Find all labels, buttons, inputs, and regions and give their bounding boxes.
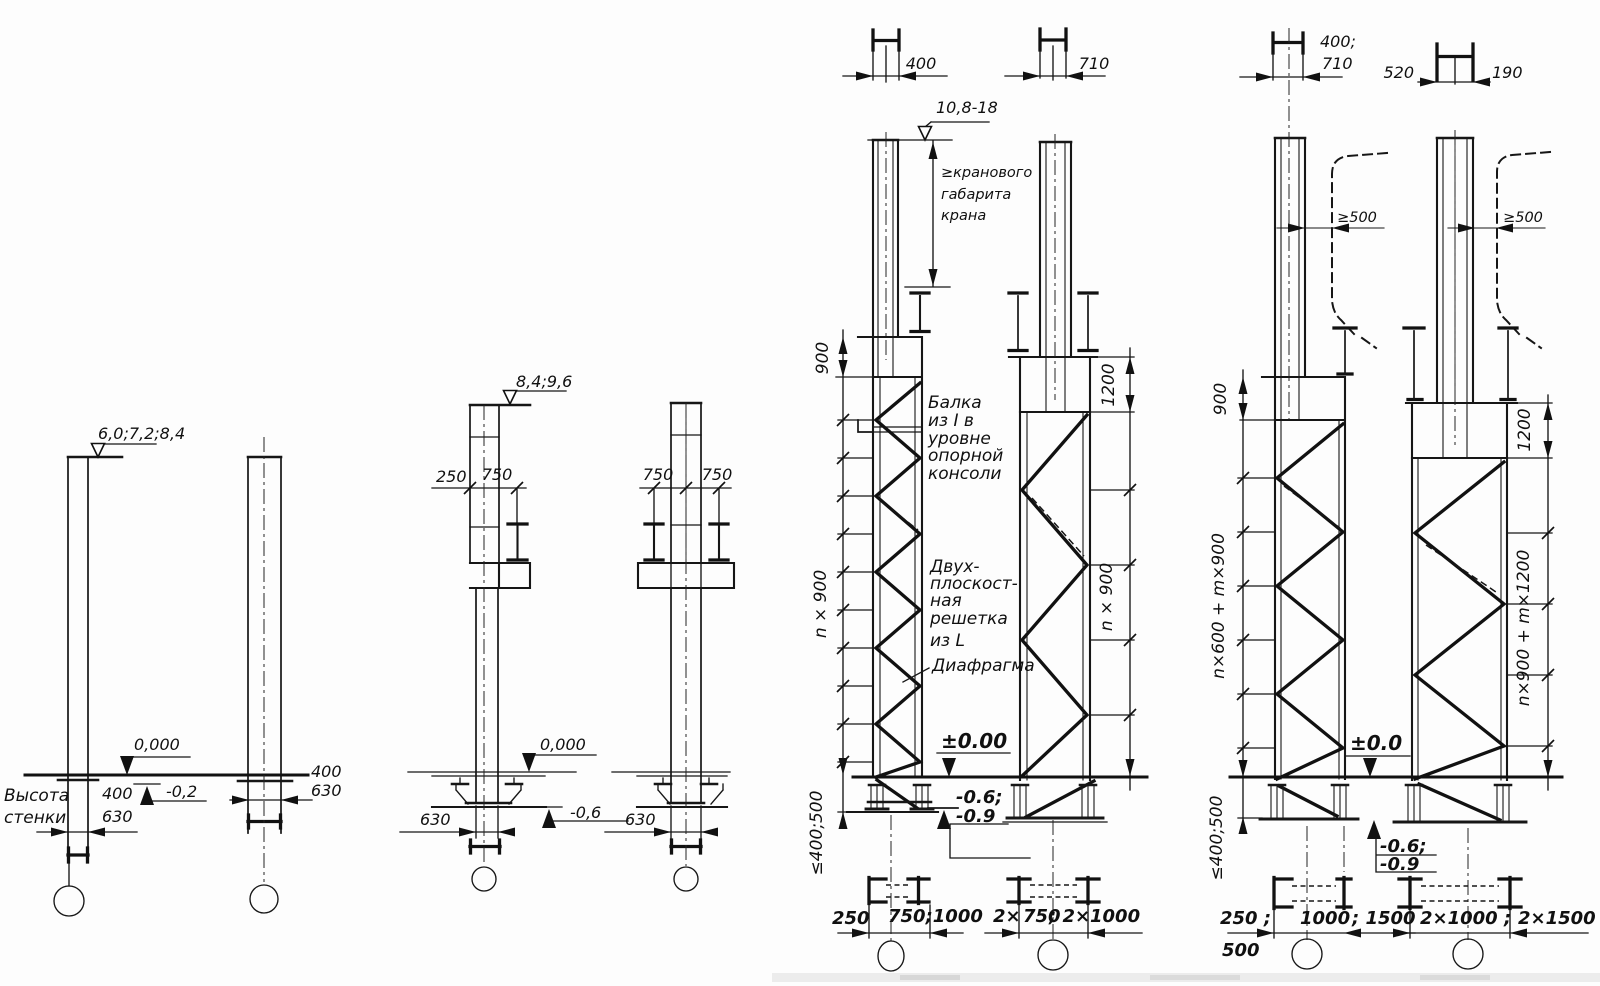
g3a-bottom-ibeam-symbol: [908, 878, 929, 904]
g3a-bottom-channel-symbol: [869, 878, 886, 904]
g3-beam-note-2: из I в: [928, 411, 974, 431]
g1-zero-level-mark: [120, 756, 134, 775]
g3-minus-level-leader: [950, 824, 1030, 858]
g3-minus-level-label-1: -0.6;: [956, 787, 1003, 808]
g3-base-dim-1000: 1000: [1090, 906, 1140, 927]
g3a-shaft-edges: [873, 140, 898, 777]
g2-minus-level-mark: [542, 809, 556, 828]
g3-base-dim-2x-2: ; 2×: [1048, 906, 1090, 927]
g2-elevation-label: 8,4;9,6: [516, 372, 572, 391]
g2-socket-foundation-sides: [456, 778, 723, 804]
column-scheme-4: 400; 710 520 190 ≥500 ≥500 900 n×600 + m…: [1207, 28, 1596, 969]
g3b-chords: [1020, 412, 1090, 780]
g1-zero-level-label: 0,000: [134, 735, 180, 754]
g4a-centerlines: [1289, 28, 1344, 940]
g4-clearance-a: ≥500: [1337, 210, 1377, 226]
g4b-bottom-dashed-ties: [1421, 886, 1499, 901]
g1-minus-level-mark: [140, 786, 154, 805]
g1-elevation-label: 6,0;7,2;8,4: [98, 424, 185, 443]
g1-axis-circle-a: [54, 886, 84, 916]
g2-dim-250: 250: [436, 467, 467, 486]
g3-embed-depth: ≤400;500: [807, 791, 827, 876]
g2-corbel-boxes: [470, 563, 734, 588]
g4b-chords: [1412, 458, 1507, 780]
g3b-crane-rail-webs: [1018, 296, 1088, 350]
g4-dim-1200: 1200: [1515, 408, 1535, 451]
g2-dim-750-b2: 750: [702, 465, 733, 484]
g1-dimension-and-leader-lines: [37, 444, 312, 886]
g4-embed-depth: ≤400;500: [1207, 796, 1227, 881]
g2-crane-rail-flanges: [508, 524, 728, 560]
column-scheme-3: 400 710 10,8-18 ≥кранового габарита кран…: [807, 29, 1147, 971]
g4b-building-outline-dashed: [1497, 152, 1550, 348]
g4a-bottom-ibeam-symbol: [1337, 878, 1351, 909]
g3-dim-1200: 1200: [1099, 363, 1119, 406]
g3-beam-note-1: Балка: [928, 393, 982, 413]
g1-width-400: 400: [102, 784, 133, 803]
g3-base-dim-250: 250: [832, 908, 870, 929]
g2-zero-level-label: 0,000: [540, 735, 586, 754]
g1-axis-circle-b: [250, 885, 278, 913]
g4-minus-level-mark: [1367, 820, 1381, 839]
g3b-crane-rail-flanges: [1009, 293, 1097, 351]
column-scheme-1: 6,0;7,2;8,4 0,000 -0,2 400 630 400 630 В…: [4, 424, 342, 916]
g4-dim-chain-b: n×900 + m×1200: [1514, 550, 1534, 707]
g3-beam-note-4: опорной: [928, 446, 1003, 466]
g4-dim-chain-a: n×600 + m×900: [1209, 533, 1229, 679]
g2-column-tops: [470, 403, 701, 405]
g3-elevation-label: 10,8-18: [936, 98, 998, 117]
g3b-centerlines: [1053, 134, 1055, 941]
g4a-chord-inner-lines: [1281, 420, 1339, 779]
g3a-dim-chain-line: [836, 330, 873, 827]
g4-zero-level-mark: [1363, 758, 1377, 777]
g3-lattice-note-4: решетка: [929, 609, 1008, 629]
g4a-plan-section-symbol: [1273, 33, 1303, 53]
g3-dim-400: 400: [906, 54, 937, 73]
g3b-lattice-diagonals: [1022, 415, 1087, 776]
g3-diaphragm-note: Диафрагма: [931, 656, 1035, 676]
g3a-second-plane-lattice-dashed: [882, 502, 918, 530]
g3a-bottom-dashed-ties: [886, 885, 908, 897]
g1-width-630: 630: [102, 807, 133, 826]
g4a-below-ground-brace: [1279, 786, 1337, 816]
g1-column-tops-and-foundation-marks: [58, 457, 292, 781]
g2-elevation-flag: [504, 391, 517, 405]
g3-crane-note-1: ≥кранового: [941, 165, 1032, 181]
g3a-axis-circle: [878, 941, 904, 971]
g1-pile-section-symbols: [68, 815, 281, 862]
g3-base-dim-750-1000: 750;1000: [888, 906, 983, 927]
g1-minus-level-label: -0,2: [166, 782, 197, 801]
g3a-elevation-flag: [919, 127, 932, 141]
g4-zero-level-label: ±0.0: [1350, 731, 1402, 755]
g4a-bottom-channel-symbol: [1274, 878, 1292, 909]
g3b-below-ground-brace: [1026, 781, 1094, 817]
g3b-second-plane-lattice-dashed: [1032, 498, 1084, 556]
g4a-building-outline-dashed: [1332, 153, 1387, 348]
g4a-dim-chain-line: [1238, 370, 1274, 828]
g1-width-400-b: 400: [311, 762, 342, 781]
g4-dim-400-710-1: 400;: [1320, 32, 1356, 51]
g4-base-dim-1000: 1000: [1300, 908, 1350, 929]
g3-dim-710: 710: [1079, 54, 1110, 73]
g2-crane-rail-webs: [518, 526, 720, 558]
g4b-bottom-ibeam-symbols: [1399, 878, 1521, 909]
g2-dimension-lines: [400, 391, 731, 838]
g3a-centerlines: [886, 132, 891, 941]
g3-zero-level-label: ±0.00: [941, 729, 1007, 753]
g2-dim-750: 750: [482, 465, 513, 484]
g1-width-630-b: 630: [311, 781, 342, 800]
g2-ground-lines: [408, 772, 730, 776]
g3-crane-note-2: габарита: [941, 187, 1011, 203]
g2-dim-750-b1: 750: [643, 465, 674, 484]
g3-zero-level-mark: [942, 758, 956, 777]
g4-dim-190: 190: [1492, 63, 1523, 82]
g4-minus-level-label-2: -0.9: [1380, 854, 1419, 875]
g3-minus-level-mark: [937, 810, 951, 829]
g4a-lattice-diagonals: [1277, 424, 1343, 779]
g4b-crane-rail-flanges: [1404, 328, 1517, 400]
g2-axis-circle-a: [472, 867, 496, 891]
g2-axis-circle-b: [674, 867, 698, 891]
g3-lattice-note-3: ная: [930, 591, 962, 611]
g2-section-dividers: [470, 435, 701, 588]
g2-socket-foundation-bold: [452, 784, 717, 803]
g2-minus-level-label: -0,6: [570, 803, 601, 822]
g4-dim-520: 520: [1383, 63, 1414, 82]
drawing-canvas: 6,0;7,2;8,4 0,000 -0,2 400 630 400 630 В…: [0, 0, 1600, 986]
column-schemes-drawing: 6,0;7,2;8,4 0,000 -0,2 400 630 400 630 В…: [0, 0, 1600, 986]
g2-dim-630-a: 630: [420, 810, 451, 829]
g4-clearance-b: ≥500: [1503, 210, 1543, 226]
g4-base-dim-500: 500: [1222, 940, 1260, 961]
g4b-below-ground-brace: [1419, 784, 1500, 820]
g4-base-dim-1500: ; 1500: [1351, 908, 1416, 929]
g4b-crane-rail-webs: [1414, 331, 1508, 399]
g4-base-dim-250: 250 ;: [1220, 908, 1271, 929]
g2-dim-630-b: 630: [625, 810, 656, 829]
g3-minus-level-label-2: -0.9: [956, 806, 995, 827]
g2-zero-level-mark: [522, 753, 536, 772]
g4a-bottom-dashed-ties: [1292, 886, 1336, 901]
g3b-axis-circle: [1038, 940, 1068, 970]
g4b-centerlines: [1455, 130, 1468, 940]
g4b-lattice-diagonals: [1415, 462, 1504, 779]
g3-lattice-note-5: из L: [930, 631, 965, 651]
g3-dim-900: 900: [813, 342, 833, 374]
g3b-head-box: [1009, 357, 1097, 412]
scan-artifact: [772, 973, 1600, 982]
g3-beam-note-5: консоли: [928, 464, 1001, 484]
g4-dim-400-710-2: 710: [1322, 54, 1353, 73]
g1-wall-height-note-2: стенки: [4, 808, 66, 828]
g4-dim-900: 900: [1211, 383, 1231, 415]
g4-base-dim-2x1500: 2×1500: [1518, 908, 1596, 929]
g4a-axis-circle: [1292, 939, 1322, 969]
g3a-lattice-diagonals: [876, 383, 920, 777]
g3-dim-n900-b: n × 900: [1097, 563, 1117, 631]
g3-base-dim-2x: 2×: [993, 906, 1021, 927]
g4b-head-box: [1406, 403, 1517, 458]
g3-crane-note-3: крана: [941, 208, 986, 224]
g1-elevation-flag: [92, 444, 105, 458]
g2-pile-section-symbols: [470, 840, 701, 853]
column-scheme-2: 8,4;9,6 250 750 750 750 0,000 -0,6 630 6…: [400, 372, 734, 891]
g4-base-dim-2x1000: 2×1000 ;: [1420, 908, 1511, 929]
g3-dim-n900-a: n × 900: [811, 570, 831, 638]
g1-wall-height-note-1: Высота: [4, 786, 69, 806]
g3a-angle-mark: [858, 420, 872, 432]
g4b-axis-circle: [1453, 939, 1483, 969]
